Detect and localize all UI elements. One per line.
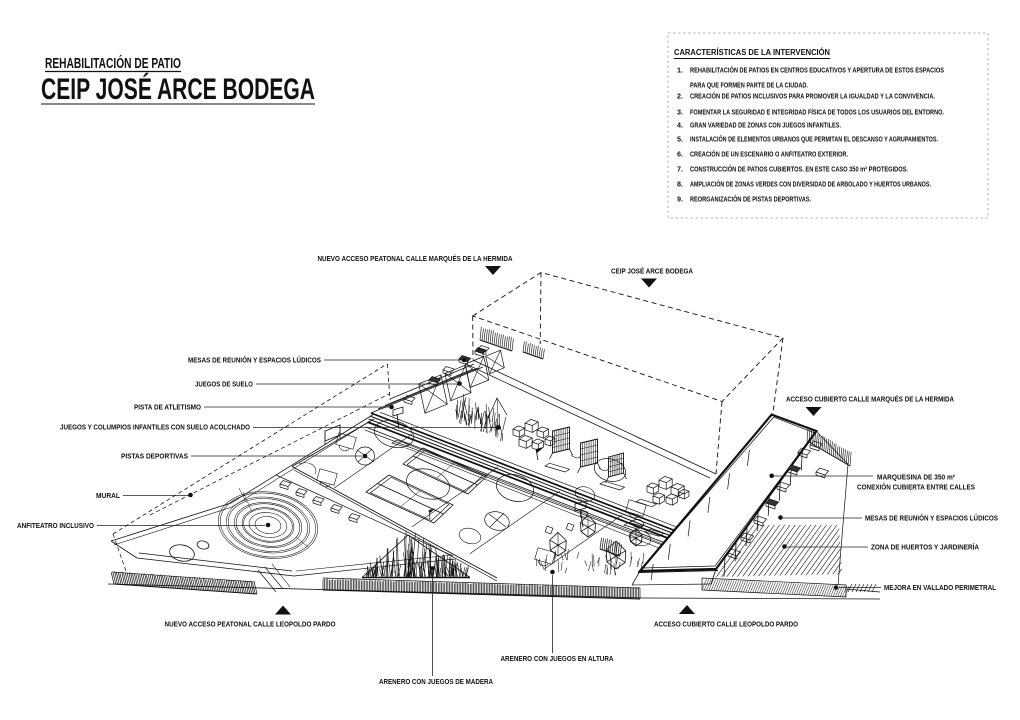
svg-text:REHABILITACIÓN DE PATIO: REHABILITACIÓN DE PATIO [45,54,181,72]
svg-text:ACCESO CUBIERTO CALLE MARQUÉS: ACCESO CUBIERTO CALLE MARQUÉS DE LA HERM… [786,395,954,404]
svg-text:CONEXIÓN CUBIERTA ENTRE CALLES: CONEXIÓN CUBIERTA ENTRE CALLES [857,483,975,492]
svg-text:GRAN VARIEDAD DE ZONAS CON JUE: GRAN VARIEDAD DE ZONAS CON JUEGOS INFANT… [690,121,841,130]
svg-text:PARA QUE FORMEN PARTE DE LA CI: PARA QUE FORMEN PARTE DE LA CIUDAD. [690,81,808,90]
svg-text:1.: 1. [677,66,683,75]
svg-text:NUEVO ACCESO PEATONAL CALLE LE: NUEVO ACCESO PEATONAL CALLE LEOPOLDO PAR… [165,620,336,629]
svg-text:ARENERO CON JUEGOS EN ALTURA: ARENERO CON JUEGOS EN ALTURA [501,654,614,663]
svg-text:PISTAS DEPORTIVAS: PISTAS DEPORTIVAS [121,452,188,461]
svg-text:ARENERO CON JUEGOS DE MADERA: ARENERO CON JUEGOS DE MADERA [379,677,493,686]
svg-text:MEJORA EN VALLADO PERIMETRAL: MEJORA EN VALLADO PERIMETRAL [884,583,997,592]
svg-text:NUEVO ACCESO PEATONAL CALLE MA: NUEVO ACCESO PEATONAL CALLE MARQUÉS DE L… [318,254,513,263]
svg-text:CREACIÓN DE UN ESCENARIO O ANF: CREACIÓN DE UN ESCENARIO O ANFITEATRO EX… [690,150,848,159]
svg-text:ANFITEATRO INCLUSIVO: ANFITEATRO INCLUSIVO [17,521,94,530]
svg-text:ACCESO CUBIERTO CALLE LEOPOLDO: ACCESO CUBIERTO CALLE LEOPOLDO PARDO [654,620,798,629]
svg-text:CREACIÓN DE PATIOS INCLUSIVOS: CREACIÓN DE PATIOS INCLUSIVOS PARA PROMO… [690,92,935,101]
svg-text:CONSTRUCCIÓN DE PATIOS CUBIERT: CONSTRUCCIÓN DE PATIOS CUBIERTOS. EN EST… [690,165,908,174]
svg-text:9.: 9. [677,195,683,204]
svg-text:MURAL: MURAL [96,491,121,500]
svg-text:ZONA DE HUERTOS Y JARDINERÍA: ZONA DE HUERTOS Y JARDINERÍA [871,543,979,552]
svg-text:7.: 7. [677,165,683,174]
svg-text:4.: 4. [677,121,683,130]
svg-text:CEIP JOSÉ ARCE BODEGA: CEIP JOSÉ ARCE BODEGA [41,72,315,106]
svg-text:MESAS DE REUNIÓN Y ESPACIOS LÚ: MESAS DE REUNIÓN Y ESPACIOS LÚDICOS [865,514,998,523]
svg-text:PISTA DE ATLETISMO: PISTA DE ATLETISMO [134,403,201,412]
svg-text:REORGANIZACIÓN DE PISTAS DEPOR: REORGANIZACIÓN DE PISTAS DEPORTIVAS. [690,195,811,204]
svg-text:JUEGOS Y COLUMPIOS INFANTILES: JUEGOS Y COLUMPIOS INFANTILES CON SUELO … [60,423,250,432]
svg-text:MESAS DE REUNIÓN Y ESPACIOS LÚ: MESAS DE REUNIÓN Y ESPACIOS LÚDICOS [188,356,321,365]
svg-text:INSTALACIÓN DE ELEMENTOS URBAN: INSTALACIÓN DE ELEMENTOS URBANOS QUE PER… [690,135,938,144]
svg-text:CARACTERÍSTICAS DE LA INTERVEN: CARACTERÍSTICAS DE LA INTERVENCIÓN [674,46,830,57]
svg-text:2.: 2. [677,92,683,101]
svg-text:AMPLIACIÓN DE ZONAS VERDES CON: AMPLIACIÓN DE ZONAS VERDES CON DIVERSIDA… [690,180,931,189]
svg-text:8.: 8. [677,180,683,189]
svg-text:3.: 3. [677,108,683,117]
svg-text:MARQUESINA DE 350 m²: MARQUESINA DE 350 m² [877,473,956,482]
svg-text:FOMENTAR LA SEGURIDAD E INTEGR: FOMENTAR LA SEGURIDAD E INTEGRIDAD FÍSIC… [690,108,944,117]
svg-text:REHABILITACIÓN DE PATIOS EN CE: REHABILITACIÓN DE PATIOS EN CENTROS EDUC… [690,66,944,75]
svg-text:6.: 6. [677,150,683,159]
svg-text:CEIP JOSÉ ARCE BODEGA: CEIP JOSÉ ARCE BODEGA [611,267,693,276]
svg-text:5.: 5. [677,135,683,144]
svg-text:JUEGOS DE SUELO: JUEGOS DE SUELO [195,380,253,389]
